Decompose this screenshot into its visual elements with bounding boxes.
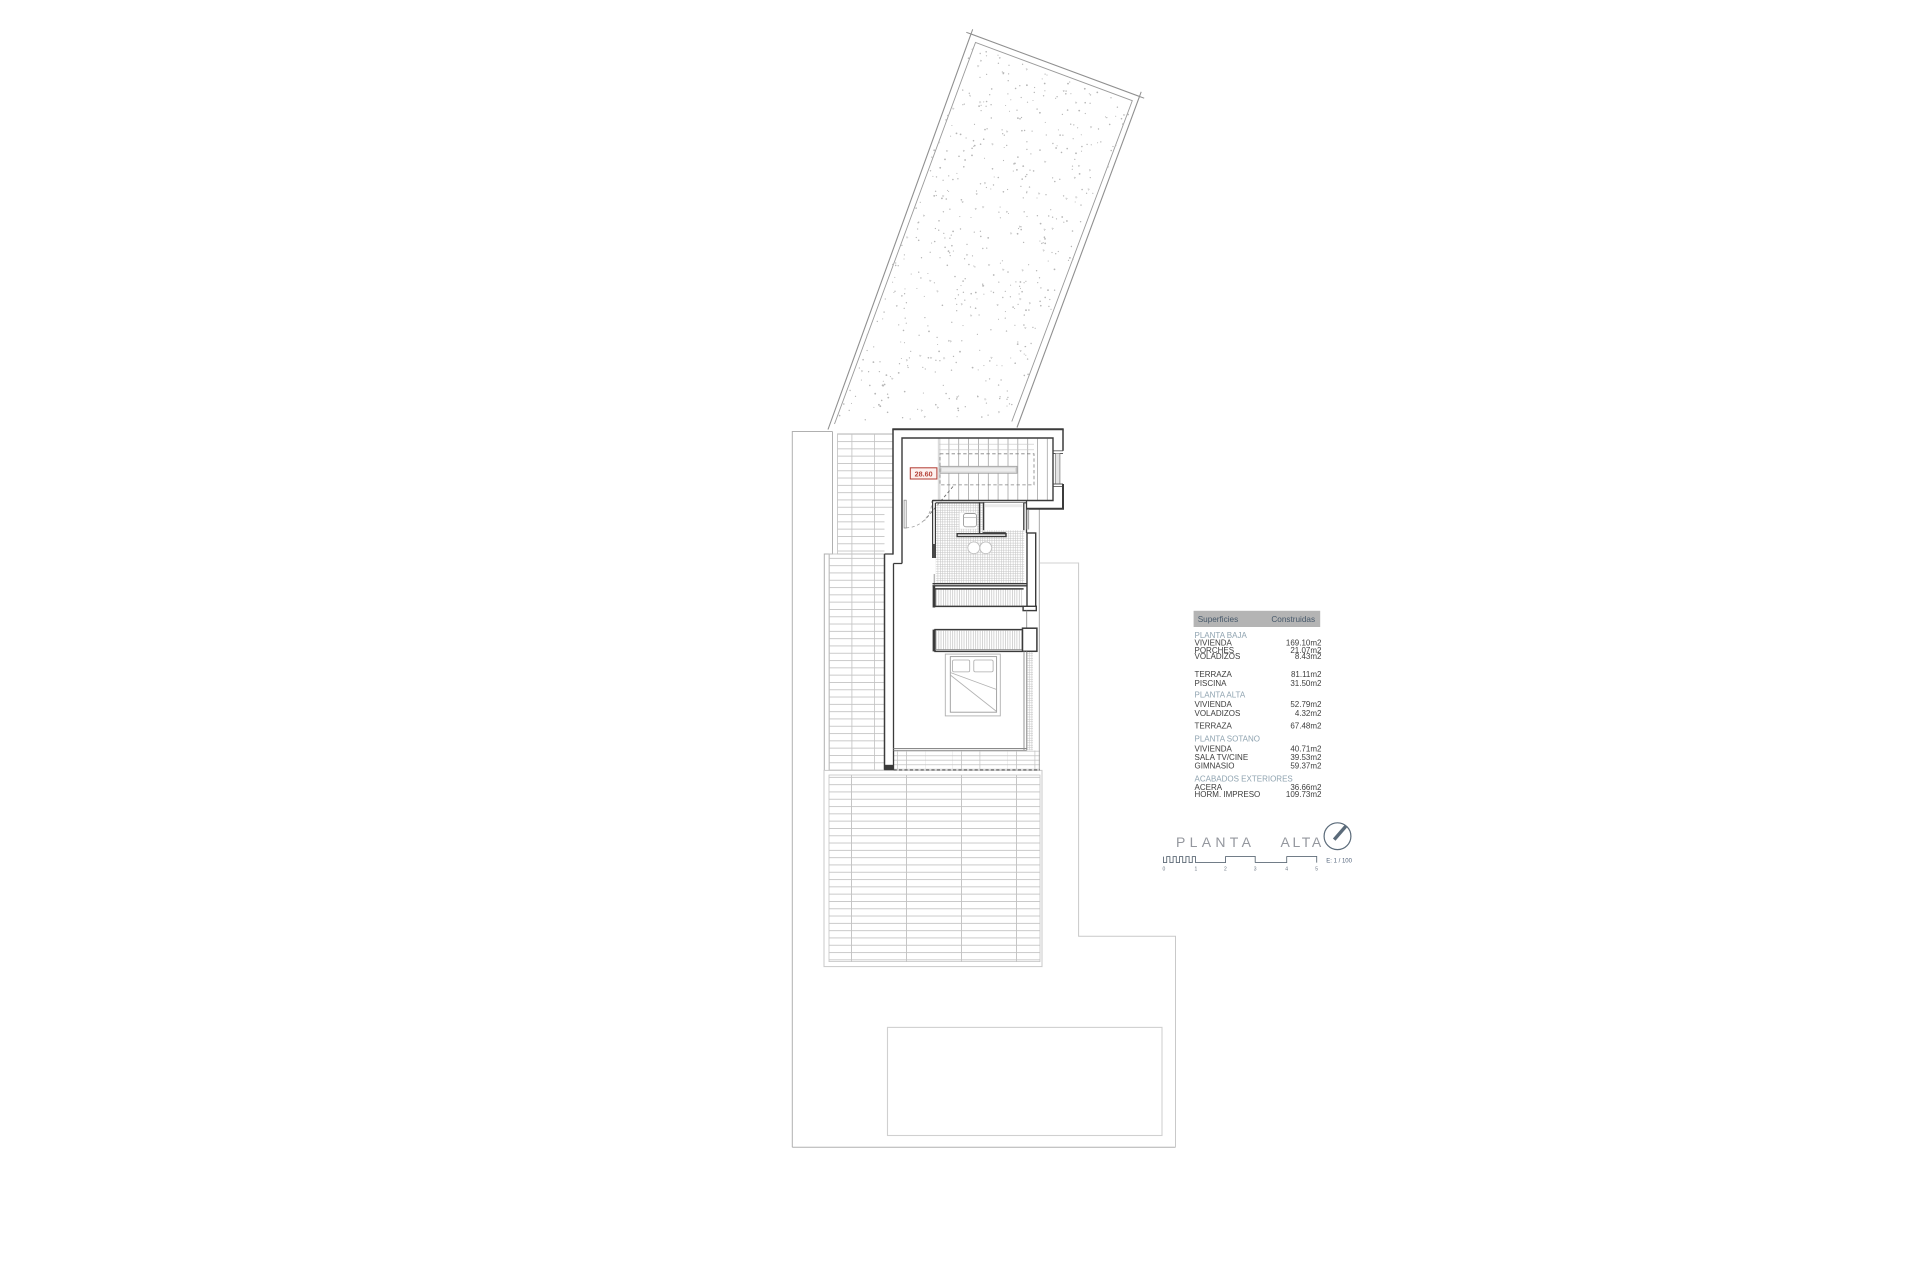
svg-text:VOLADIZOS: VOLADIZOS: [1195, 652, 1241, 661]
svg-text:TERRAZA: TERRAZA: [1195, 722, 1233, 731]
svg-text:31.50m2: 31.50m2: [1290, 679, 1322, 688]
svg-text:59.37m2: 59.37m2: [1290, 762, 1322, 771]
svg-text:52.79m2: 52.79m2: [1290, 700, 1322, 709]
svg-text:4.32m2: 4.32m2: [1295, 709, 1322, 718]
svg-text:PISCINA: PISCINA: [1195, 679, 1228, 688]
svg-text:Construidas: Construidas: [1271, 615, 1315, 624]
svg-text:3: 3: [1254, 867, 1257, 873]
svg-text:2: 2: [1224, 867, 1227, 873]
svg-text:PLANTA SOTANO: PLANTA SOTANO: [1195, 735, 1261, 744]
svg-text:HORM. IMPRESO: HORM. IMPRESO: [1195, 790, 1261, 799]
svg-text:ALTA: ALTA: [1281, 834, 1324, 850]
svg-text:5: 5: [1315, 867, 1318, 873]
svg-text:E: 1 / 100: E: 1 / 100: [1326, 858, 1352, 864]
svg-text:Superficies: Superficies: [1198, 615, 1239, 624]
svg-text:28.60: 28.60: [915, 470, 933, 479]
svg-text:8.43m2: 8.43m2: [1295, 652, 1322, 661]
svg-text:VIVIENDA: VIVIENDA: [1195, 700, 1233, 709]
svg-text:GIMNASIO: GIMNASIO: [1195, 762, 1235, 771]
svg-text:0: 0: [1163, 867, 1166, 873]
svg-text:67.48m2: 67.48m2: [1290, 722, 1322, 731]
svg-text:1: 1: [1195, 867, 1198, 873]
svg-text:4: 4: [1285, 867, 1288, 873]
svg-text:109.73m2: 109.73m2: [1286, 790, 1322, 799]
svg-text:PLANTA: PLANTA: [1176, 834, 1255, 850]
svg-text:81.11m2: 81.11m2: [1291, 670, 1322, 679]
svg-text:VOLADIZOS: VOLADIZOS: [1195, 709, 1241, 718]
svg-text:PLANTA ALTA: PLANTA ALTA: [1195, 691, 1246, 700]
svg-text:TERRAZA: TERRAZA: [1195, 670, 1233, 679]
